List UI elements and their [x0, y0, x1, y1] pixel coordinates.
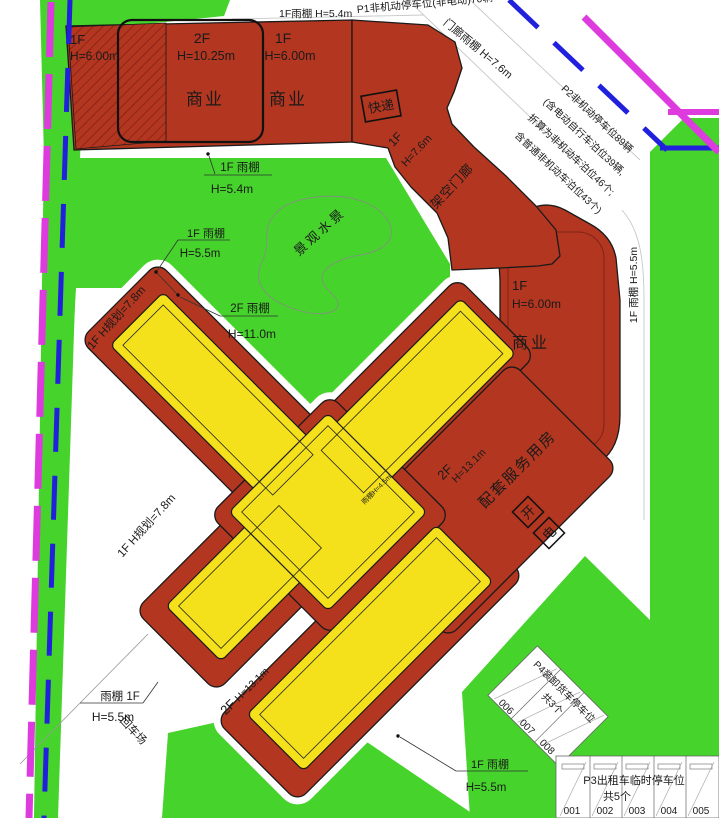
label-blk3-use: 商业 — [269, 90, 307, 109]
label-blk3-floor: 1F — [275, 30, 291, 46]
label-canopy54-line2: H=5.4m — [211, 182, 253, 196]
green-right-strip — [650, 118, 719, 818]
label-top-canopy: 1F雨棚 H=5.4m — [279, 7, 352, 20]
label-p3-stall-3: 003 — [629, 806, 646, 817]
label-blk1-floor: 1F — [70, 32, 85, 47]
label-blk2-height: H=10.25m — [177, 49, 235, 63]
label-blk3-height: H=6.00m — [264, 49, 315, 63]
label-p3-stall-2: 002 — [597, 806, 614, 817]
label-rblk-floor: 1F — [512, 278, 527, 293]
site-plan: P1非机动停车位(非电动)70辆 1F雨棚 H=5.4m 1F H=6.00m … — [0, 0, 719, 818]
label-p3-line1: P3出租车临时停车位 — [583, 773, 684, 787]
label-canopy55-line1: 1F 雨棚 — [187, 226, 225, 240]
site-plan-drawing: P1非机动停车位(非电动)70辆 1F雨棚 H=5.4m 1F H=6.00m … — [0, 0, 719, 818]
label-canopy2f-line2: H=11.0m — [228, 327, 276, 341]
label-blk2-use: 商业 — [186, 90, 224, 109]
label-blk1-height: H=6.00m — [70, 49, 119, 63]
label-canopy54-line1: 1F 雨棚 — [220, 160, 260, 174]
label-bl-canopy-line1: 雨棚 1F — [100, 689, 140, 703]
label-p3-stall-1: 001 — [564, 806, 581, 817]
label-canopy2f-line1: 2F 雨棚 — [230, 301, 270, 315]
label-p3-line2: 共5个 — [603, 790, 631, 803]
label-p3-stall-4: 004 — [661, 806, 678, 817]
label-bottom-canopy-line2: H=5.5m — [466, 782, 507, 794]
label-rblk-height: H=6.00m — [512, 297, 561, 311]
label-p3-stall-5: 005 — [693, 806, 710, 817]
label-blk2-floor: 2F — [194, 30, 210, 46]
label-rblk-use: 商业 — [512, 334, 550, 352]
label-right-canopy: 1F 雨棚 H=5.5m — [627, 247, 640, 323]
label-bottom-canopy-line1: 1F 雨棚 — [471, 757, 509, 771]
label-canopy55-line2: H=5.5m — [180, 248, 221, 260]
